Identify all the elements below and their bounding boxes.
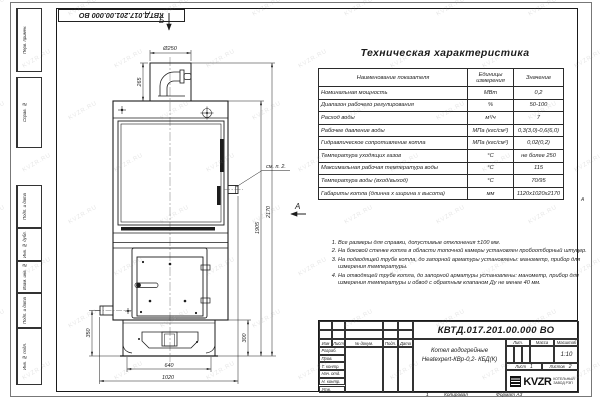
sheet-value: 1: [530, 364, 533, 370]
upper-door: [118, 121, 224, 231]
product-name-line1: Котел водогрейные: [431, 347, 488, 356]
chimney: [150, 63, 191, 101]
dim-base-height: 300: [228, 320, 251, 356]
company-logo-cell: KVZR КОТЕЛЬНЫЙ ЗАВОД РЭП: [506, 370, 579, 393]
view-arrow-b: Б: [159, 13, 169, 30]
rev-header: Изм: [319, 339, 332, 347]
table-row: Номинальная мощностьМВт0,2: [319, 87, 564, 100]
svg-text:640: 640: [165, 363, 174, 369]
product-name-cell: Котел водогрейные Heatexpert-КВр-0,2- КБ…: [413, 339, 506, 393]
col-header: Единицы измерения: [468, 69, 514, 87]
rev-header: № докум.: [345, 339, 383, 347]
kvzr-logo-text: KVZR: [523, 376, 551, 388]
spec-table: Наименование показателя Единицы измерени…: [318, 68, 564, 200]
kvzr-logo-icon: [510, 376, 521, 387]
svg-text:350: 350: [86, 329, 92, 338]
drawing-sheet: КВТД.017.201.00.000 ВО Перв. примен. Спр…: [0, 0, 600, 400]
lit-label: Лит.: [506, 339, 530, 346]
table-title: Техническая характеристика: [330, 47, 560, 59]
scale-value: 1:10: [554, 346, 579, 363]
svg-text:2170: 2170: [266, 206, 272, 219]
table-row: Габариты котла (длинна х ширина х высота…: [319, 187, 564, 200]
hinge-bottom: [201, 298, 210, 303]
side-box-inv-podl: Инв. № подл.: [16, 328, 42, 385]
furnace-door-handle: [135, 283, 158, 288]
door-sill: [121, 227, 215, 231]
side-label: Взам. инв. №: [17, 262, 31, 292]
sheet-cell: Лист 1: [506, 363, 542, 370]
door-handle-bar: [220, 139, 224, 172]
table-row: Температура уходящих газов°Сне более 250: [319, 149, 564, 162]
table-header-row: Наименование показателя Единицы измерени…: [319, 69, 564, 87]
dim-base-width: 640: [127, 357, 211, 372]
sig-row-label: Пров.: [319, 355, 345, 363]
table-row: Температура воды (вход/выход)°С70/95: [319, 175, 564, 188]
top-fittings: [118, 106, 214, 120]
svg-text:1905: 1905: [255, 221, 261, 234]
base-foundation: [120, 320, 218, 356]
svg-text:265: 265: [137, 77, 143, 88]
sheet-label: Лист: [515, 364, 526, 369]
bottom-zone-number: 1: [426, 393, 429, 398]
side-box-podp-data-2: Подп. и дата: [16, 293, 42, 328]
view-arrow-a: А: [291, 202, 306, 214]
boiler-body: [113, 101, 228, 320]
sig-row-label: Утв.: [319, 386, 345, 394]
rev-header: Лист: [332, 339, 345, 347]
dim-chimney-diameter: Ø250: [150, 46, 191, 61]
sig-row-label: Разраб.: [319, 347, 345, 355]
col-header: Наименование показателя: [319, 69, 468, 87]
note-item: На отводящей трубе котла, до запорной ар…: [338, 273, 590, 288]
side-label: Инв. № подл.: [17, 329, 31, 384]
side-label: Перв. примен.: [17, 9, 31, 71]
sheets-label: Листов: [549, 364, 564, 369]
side-box-sprav: Справ. №: [16, 77, 42, 148]
svg-text:см. п. 2.: см. п. 2.: [266, 164, 286, 170]
notes-list: Все размеры для справки, допустимые откл…: [327, 240, 590, 288]
sig-row-label: Н. контр.: [319, 378, 345, 386]
sig-row-label: Нач. отд.: [319, 370, 345, 378]
table-row: Расход водым³/ч7: [319, 112, 564, 125]
margin-zone-letter: А: [581, 197, 584, 203]
product-name-line2: Heatexpert-КВр-0,2- КБД(К): [422, 356, 497, 365]
col-header: Значение: [514, 69, 564, 87]
flue-elbow: [158, 70, 191, 96]
rev-header: Дата: [398, 339, 413, 347]
side-label: Справ. №: [17, 78, 31, 147]
table-row: Максимальная рабочая температура воды°С1…: [319, 162, 564, 175]
svg-text:А: А: [294, 202, 300, 211]
door-latch-bar: [217, 186, 221, 205]
title-block: Изм Лист № докум. Подп. Дата Разраб. Про…: [318, 320, 578, 392]
side-box-vzam-inv: Взам. инв. №: [16, 261, 42, 293]
rev-header: Подп.: [383, 339, 398, 347]
dim-chimney-height: 265: [137, 63, 148, 101]
furnace-door: [132, 248, 210, 318]
copied-label: Копировал: [444, 393, 468, 398]
side-label: Подп. и дата: [17, 294, 31, 327]
side-box-podp-data-1: Подп. и дата: [16, 185, 42, 228]
side-box-inv-dubl: Инв. № дубл.: [16, 228, 42, 261]
sheets-cell: Листов 2: [542, 363, 579, 370]
table-row: Рабочее давление водыМПа (кгс/см²)0,3(3,…: [319, 124, 564, 137]
mass-label: Масса: [530, 339, 554, 346]
boiler-front-view: Б Ø250 265: [56, 8, 320, 392]
sampling-stub: [224, 186, 243, 194]
svg-text:Б: Б: [159, 16, 164, 25]
sig-row-label: Т. контр.: [319, 362, 345, 370]
side-label: Подп. и дата: [17, 186, 31, 227]
side-label: Инв. № дубл.: [17, 229, 31, 260]
kvzr-logo-caption: КОТЕЛЬНЫЙ ЗАВОД РЭП: [553, 378, 574, 386]
svg-text:1020: 1020: [162, 375, 174, 381]
left-pipe-stub: [95, 306, 133, 315]
scale-label: Масштаб: [554, 339, 579, 346]
svg-text:300: 300: [242, 334, 248, 343]
note-item: На подводящей трубе котла, до запорной а…: [338, 257, 590, 272]
note-item: Все размеры для справки, допустимые откл…: [338, 240, 590, 247]
dim-total-height: 2170: [191, 63, 276, 356]
table-row: Диапазон рабочего регулирования%50-100: [319, 99, 564, 112]
title-block-doc-number: КВТД.017.201.00.000 ВО: [413, 321, 579, 339]
dim-stub-height: 350: [86, 311, 123, 357]
note-item: На боковой стенке котла в области топочн…: [338, 248, 590, 255]
dim-body-height: 1905: [228, 101, 264, 356]
format-label: Формат А3: [496, 393, 522, 398]
svg-text:Ø250: Ø250: [162, 46, 178, 52]
hinge-top: [201, 265, 210, 270]
side-box-perv-primen: Перв. примен.: [16, 8, 42, 72]
callout-note2: см. п. 2.: [236, 164, 290, 187]
sheets-value: 2: [569, 364, 572, 370]
table-row: Гидравлическое сопротивление котлаМПа (к…: [319, 137, 564, 150]
